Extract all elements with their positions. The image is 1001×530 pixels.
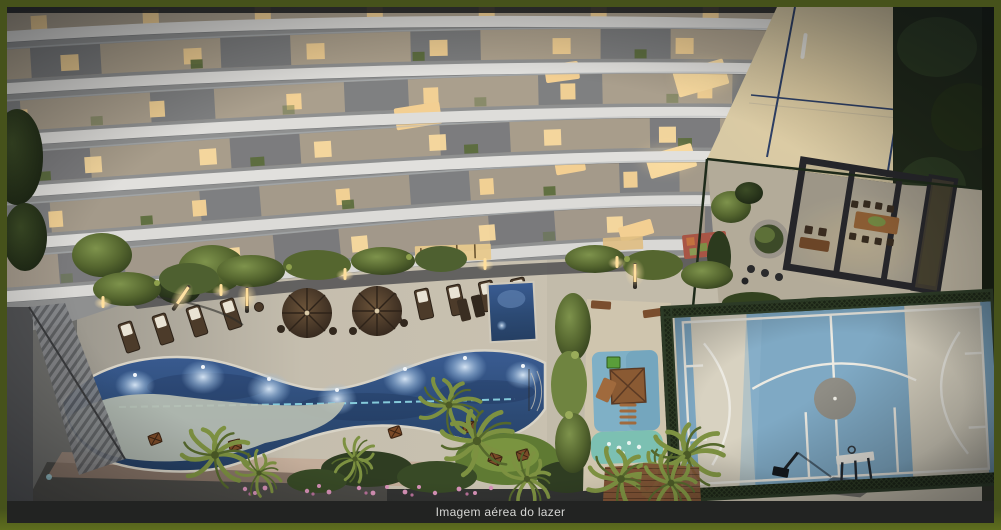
- caption-text: Imagem aérea do lazer: [436, 506, 566, 518]
- render-figure: Imagem aérea do lazer: [7, 7, 994, 523]
- olive-frame-border: Imagem aérea do lazer: [0, 0, 1001, 530]
- aerial-leisure-render: [7, 7, 994, 501]
- vignette-overlay: [7, 7, 994, 501]
- caption-bar: Imagem aérea do lazer: [7, 501, 994, 523]
